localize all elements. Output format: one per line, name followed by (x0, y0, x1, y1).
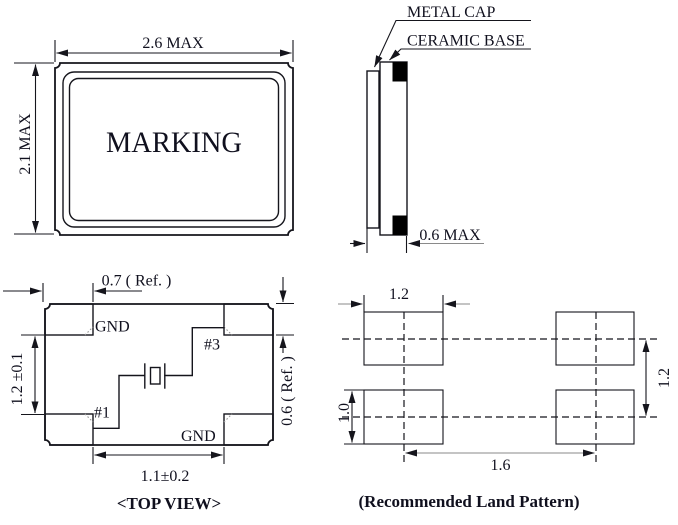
dim-width-label: 2.6 MAX (142, 35, 204, 52)
crystal-body (151, 368, 161, 385)
land-dim-pad-height-label: 1.0 (336, 403, 353, 423)
marking-label: MARKING (106, 126, 242, 159)
terminal-pad-top (393, 62, 408, 82)
metal-cap-body (367, 71, 379, 228)
top-view-caption: <TOP VIEW> (117, 494, 221, 513)
terminal-pad-bottom (393, 216, 408, 236)
gnd-label-bottom-right: GND (181, 428, 216, 445)
dim-inner-horizontal-label: 1.1±0.2 (141, 468, 190, 485)
land-pattern-caption: (Recommended Land Pattern) (359, 492, 580, 511)
land-dim-pad-width-label: 1.2 (389, 286, 409, 303)
dim-pad-width-label: 0.7 ( Ref. ) (102, 273, 172, 290)
ceramic-base-label: CERAMIC BASE (407, 33, 525, 50)
ceramic-base-body (380, 62, 407, 235)
metal-cap-label: METAL CAP (407, 4, 495, 21)
land-dim-col-pitch-label: 1.6 (491, 457, 511, 474)
pad-chamfer (224, 327, 232, 335)
pin1-pad-bottom-left (45, 414, 93, 445)
gnd-pad-top-left (45, 304, 93, 335)
drawing-canvas: MARKING 2.6 MAX 2.1 MAX METAL CAP CERAMI… (0, 0, 678, 525)
ceramic-base-leader (390, 49, 532, 60)
dim-thickness-label: 0.6 MAX (419, 227, 481, 244)
pad-chamfer (85, 414, 93, 422)
pad-chamfer (85, 327, 93, 335)
dim-pad-height-label: 0.6 ( Ref. ) (279, 356, 296, 426)
dim-height-label: 2.1 MAX (17, 113, 34, 175)
top-view: GND #3 #1 GND 0.7 ( Ref. ) 1.2 ±0.1 0.6 … (3, 273, 296, 514)
pin1-label: #1 (94, 405, 110, 422)
pin3-pad-top-right (224, 304, 273, 335)
side-view: METAL CAP CERAMIC BASE 0.6 MAX (350, 4, 531, 253)
front-view: MARKING 2.6 MAX 2.1 MAX (14, 35, 293, 235)
land-pattern-view: 1.2 1.0 1.2 1.6 (Recommended Land Patter… (336, 286, 673, 511)
dim-inner-vertical-label: 1.2 ±0.1 (9, 353, 26, 406)
land-dim-row-pitch-label: 1.2 (656, 368, 673, 388)
pin3-label: #3 (204, 337, 220, 354)
gnd-label-top-left: GND (95, 319, 130, 336)
gnd-pad-bottom-right (224, 414, 273, 445)
package-drawing: MARKING 2.6 MAX 2.1 MAX METAL CAP CERAMI… (0, 0, 678, 525)
pad-chamfer (224, 414, 232, 422)
